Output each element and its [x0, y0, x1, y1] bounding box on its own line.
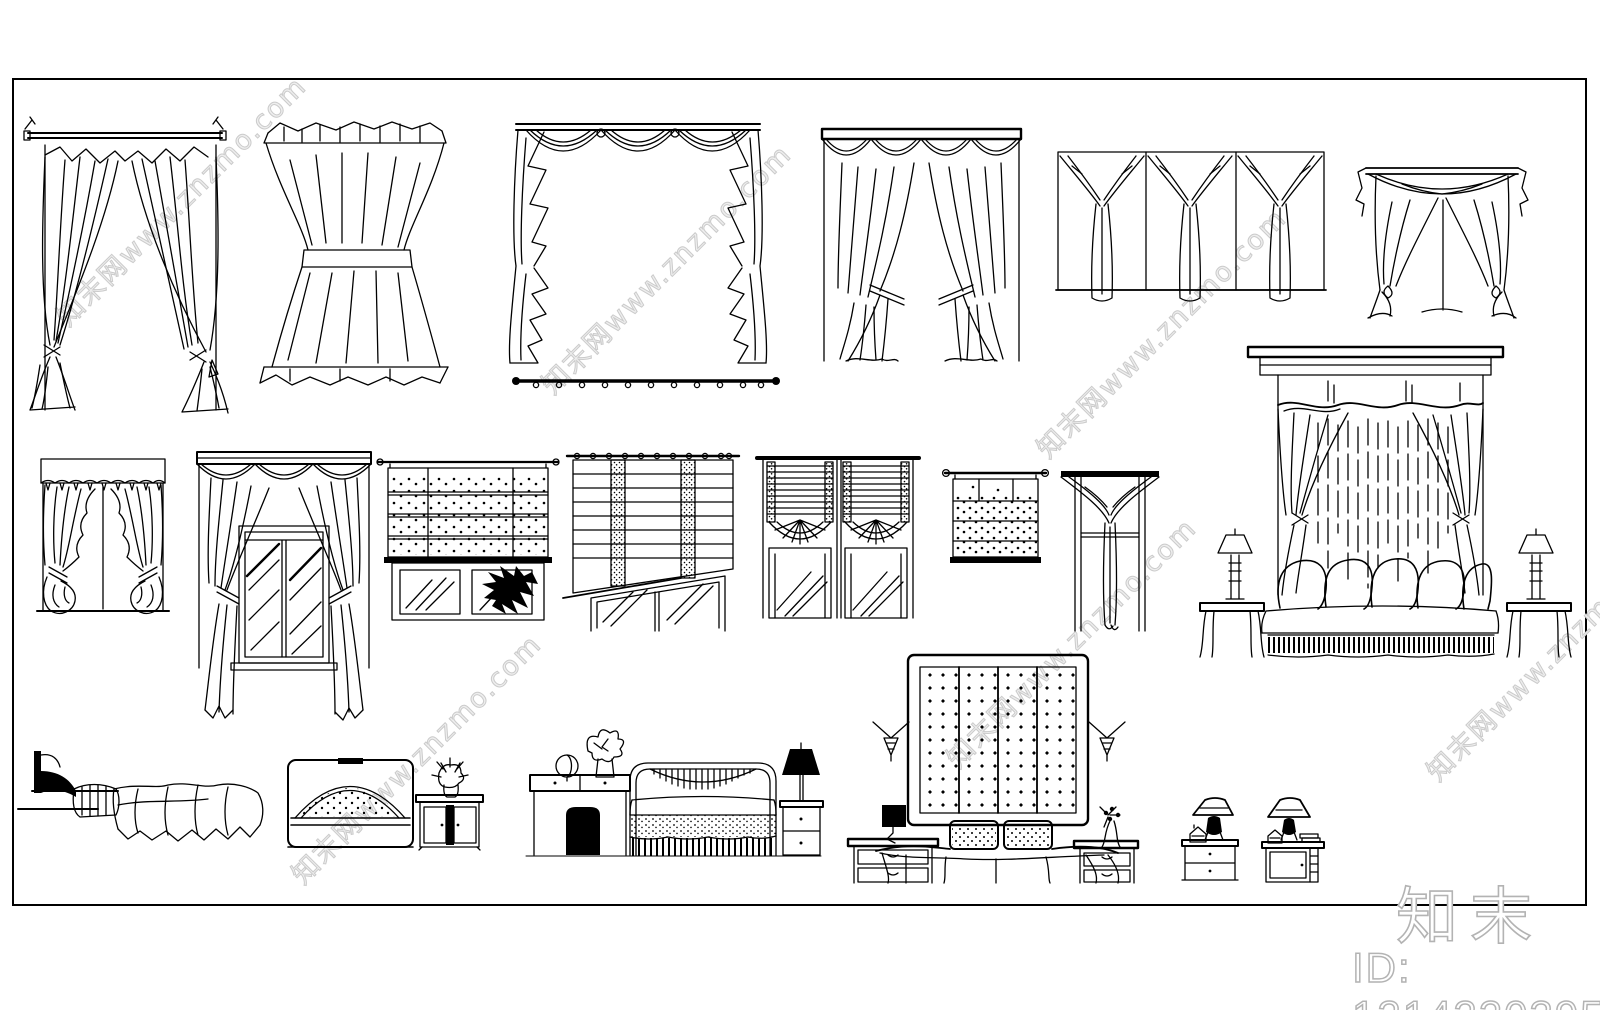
dotted-roman-shade-window: [376, 452, 560, 620]
canopy-bed-with-drapery-and-lamps: [1198, 343, 1573, 663]
balloon-shade-window: [753, 450, 923, 620]
banded-roman-shade-window: [563, 446, 743, 634]
ruffled-cottage-curtain: [33, 453, 173, 623]
cornice-scallop-curtains: [818, 123, 1025, 368]
scarf-swag-curtain: [1352, 160, 1532, 320]
curtain-rod-with-rings: [506, 373, 786, 395]
cad-curtain-furniture-sheet: 知末网www.znzmo.com 知末网www.znzmo.com 知末网www…: [0, 0, 1600, 1010]
bed-side-elevation: [18, 745, 263, 845]
valance-window-with-long-drapes: [193, 448, 375, 723]
arched-headboard-with-nightstand: [283, 755, 483, 850]
pair-of-nightstands-with-lamps: [1158, 772, 1343, 884]
dotted-mini-shade: [943, 465, 1048, 573]
site-logo-watermark: 知末: [1396, 866, 1544, 956]
panel-headboard-bed-set: [846, 643, 1138, 883]
pole-canopy-drapes: [20, 105, 230, 415]
hourglass-sash-curtain: [250, 115, 460, 390]
watermark-id-text: ID: 1214220395: [1352, 944, 1600, 1010]
swag-valance-with-cascades: [488, 118, 788, 368]
scarf-tail-window: [1055, 465, 1165, 635]
three-panel-draped-valance: [1056, 150, 1326, 305]
vanity-bed-nightstand-set: [518, 703, 823, 858]
